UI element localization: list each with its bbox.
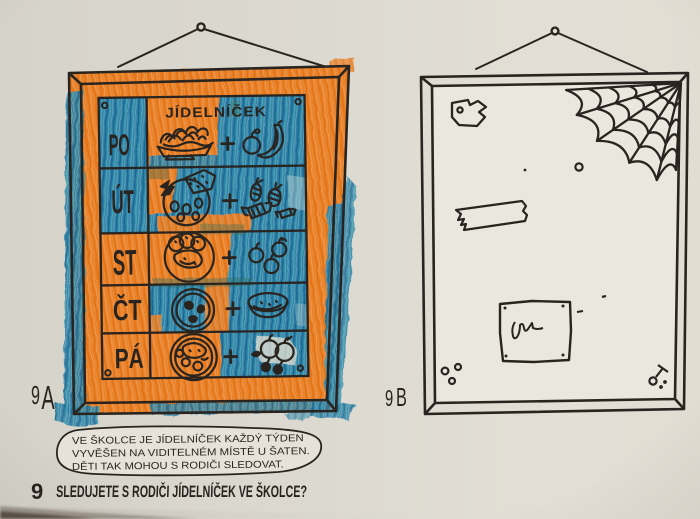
- svg-text:9: 9: [31, 380, 40, 410]
- svg-text:DĚTI TAK MOHOU S RODIČI SLEDOV: DĚTI TAK MOHOU S RODIČI SLEDOVAT.: [72, 458, 284, 473]
- svg-text:A: A: [42, 379, 56, 417]
- svg-text:9: 9: [385, 387, 393, 412]
- svg-text:PÁ: PÁ: [114, 343, 144, 375]
- svg-text:ČT: ČT: [113, 293, 142, 328]
- svg-text:PO: PO: [108, 128, 129, 161]
- svg-text:SLEDUJETE S RODIČI JÍDELNÍČEK: SLEDUJETE S RODIČI JÍDELNÍČEK VE ŠKOLCE?: [56, 480, 307, 500]
- svg-text:ÚT: ÚT: [111, 183, 134, 221]
- svg-text:9: 9: [31, 479, 43, 504]
- svg-text:ST: ST: [113, 242, 137, 282]
- svg-text:B: B: [396, 382, 407, 412]
- svg-text:JÍDELNÍČEK: JÍDELNÍČEK: [165, 103, 267, 122]
